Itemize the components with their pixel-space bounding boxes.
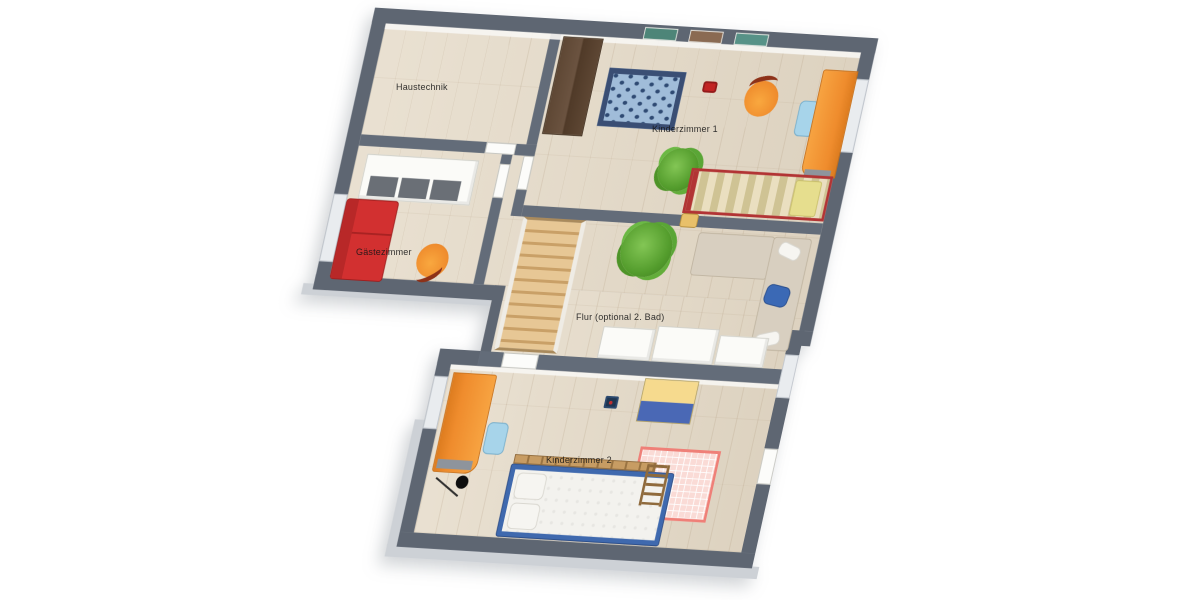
room-label-haustechnik: Haustechnik	[396, 82, 448, 92]
room-label-flur: Flur (optional 2. Bad)	[576, 312, 664, 322]
sideboard-white	[714, 335, 770, 368]
toy-chest-lid	[641, 379, 698, 404]
wardrobe-door-panel	[398, 178, 430, 199]
wall-picture	[733, 33, 769, 47]
floor-plan-scene: Haustechnik Kinderzimmer 1 Gästezimmer F…	[0, 0, 1200, 600]
wardrobe-door-panel	[429, 180, 461, 201]
room-label-kinderzimmer-2: Kinderzimmer 2	[546, 455, 612, 465]
sideboard-white	[597, 326, 656, 361]
toy-car-red	[702, 81, 718, 93]
door-kinderzimmer-2	[501, 352, 539, 369]
door-haustechnik	[485, 142, 517, 155]
wardrobe-white	[358, 154, 480, 206]
wardrobe-door-panel	[366, 176, 398, 197]
toy-car-yellow	[679, 213, 700, 228]
toy-detail	[609, 401, 613, 405]
bed-kinderzimmer-1	[682, 168, 833, 222]
toy-chest	[636, 378, 700, 425]
wall-picture	[643, 27, 679, 41]
room-label-kinderzimmer-1: Kinderzimmer 1	[652, 124, 718, 134]
corner-sofa-chaise	[689, 232, 775, 280]
toy-chest-body	[637, 401, 694, 424]
bed-pillow	[506, 502, 542, 530]
bed-pillow-yellow	[789, 180, 823, 217]
star-rug	[597, 68, 687, 131]
floor-plan-3d-view	[226, 6, 925, 595]
bed-pillow	[512, 472, 548, 500]
wall-picture	[688, 30, 724, 44]
sideboard-white	[651, 326, 720, 365]
sofa-cushion-line	[352, 231, 392, 235]
room-label-gaestezimmer: Gästezimmer	[356, 247, 412, 257]
toy-box-navy	[603, 396, 619, 409]
